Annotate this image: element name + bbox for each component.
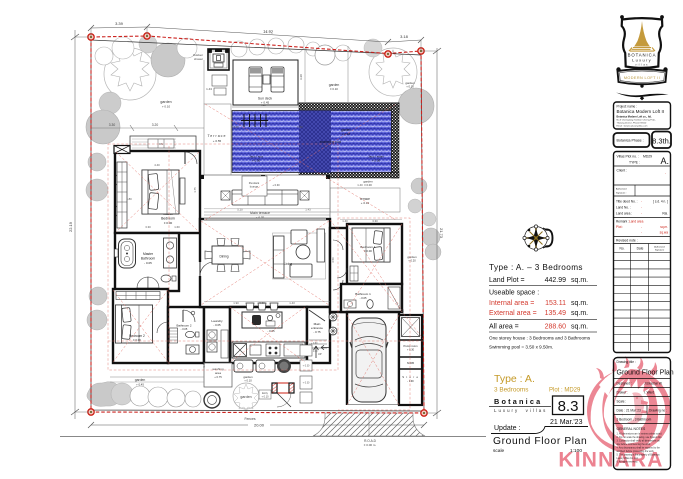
svg-text:3.30: 3.30 — [145, 225, 151, 229]
svg-text:sq.m.: sq.m. — [571, 300, 588, 307]
svg-text:garden: garden — [135, 378, 146, 382]
svg-text:3.20: 3.20 — [299, 74, 303, 80]
svg-text:21.73: 21.73 — [439, 228, 444, 239]
svg-text:Master: Master — [143, 252, 154, 256]
svg-text:sq.wa: sq.wa — [660, 231, 669, 235]
svg-text:Botanica Modern Loft II: Botanica Modern Loft II — [617, 109, 665, 114]
svg-text:Project name :: Project name : — [617, 105, 638, 109]
svg-text:Botanica: Botanica — [494, 397, 542, 406]
svg-text:M.DB: M.DB — [407, 361, 414, 365]
svg-text:4.40: 4.40 — [154, 163, 160, 167]
svg-text:Thalang District, Phuket 83110: Thalang District, Phuket 83110 — [617, 122, 648, 125]
svg-text:villas: villas — [635, 62, 649, 66]
svg-text:Ground Floor Plan: Ground Floor Plan — [493, 436, 587, 447]
svg-text:153.11: 153.11 — [545, 300, 566, 307]
svg-text:garden: garden — [240, 395, 251, 399]
svg-text:5.20: 5.20 — [237, 208, 243, 212]
svg-text:3.39: 3.39 — [115, 21, 124, 26]
svg-text:+ 0.20: + 0.20 — [408, 259, 416, 263]
svg-text:+ 0.00: + 0.00 — [372, 159, 381, 163]
svg-text:UP: UP — [318, 352, 322, 356]
svg-text:-: - — [641, 231, 642, 235]
svg-text:+ 0.10: + 0.10 — [244, 379, 252, 383]
svg-text:Villas Plot no. :: Villas Plot no. : — [617, 155, 639, 159]
svg-text:-: - — [641, 225, 642, 229]
svg-text:135.49: 135.49 — [545, 310, 567, 317]
svg-text:All area =: All area = — [489, 324, 519, 331]
svg-text:Botanica Phase :: Botanica Phase : — [617, 139, 644, 143]
svg-text:MD29: MD29 — [643, 155, 652, 159]
svg-text:442.99: 442.99 — [545, 277, 567, 284]
svg-text:± 0.00: ± 0.00 — [364, 249, 372, 253]
svg-text:Main terrace: Main terrace — [250, 211, 270, 215]
svg-text:Authorized: Authorized — [616, 188, 627, 191]
svg-text:A.: A. — [660, 156, 669, 166]
svg-text:2.30: 2.30 — [297, 125, 303, 129]
svg-text:3.50: 3.50 — [331, 257, 335, 263]
svg-text:KINNARA: KINNARA — [558, 449, 663, 472]
svg-text:- 0.05: - 0.05 — [213, 323, 221, 327]
svg-text:Signature :: Signature : — [616, 192, 627, 195]
svg-text:- 0.75: - 0.75 — [313, 330, 321, 334]
svg-text:3 Bedrooms: 3 Bedrooms — [494, 387, 528, 394]
svg-text:garden: garden — [405, 81, 415, 85]
svg-text:Bathroom 2: Bathroom 2 — [177, 324, 192, 328]
svg-text:- 0.90: - 0.90 — [407, 380, 414, 383]
svg-text:-: - — [641, 206, 642, 210]
svg-text:No.3 Cherngtalay Tambon Cherng: No.3 Cherngtalay Tambon Cherng Prab, — [617, 119, 656, 122]
svg-text:3.20: 3.20 — [233, 125, 239, 129]
svg-text:Luxury villas: Luxury villas — [494, 408, 547, 413]
svg-text:- 0.05: - 0.05 — [181, 327, 188, 331]
svg-text:Swimming pool = 3.50 x 9.50: Swimming pool = 3.50 x 9.50m. — [489, 345, 553, 350]
svg-text:1.43: 1.43 — [206, 87, 212, 91]
svg-text:Terrace: Terrace — [208, 134, 227, 138]
svg-text:garden: garden — [363, 180, 373, 184]
svg-text:Rai.: Rai. — [662, 212, 668, 216]
svg-text:+ 0.45: + 0.45 — [261, 100, 270, 104]
svg-text:Plot : MD29: Plot : MD29 — [549, 388, 581, 394]
svg-text:± 0.00: ± 0.00 — [364, 183, 372, 187]
svg-text:1.40: 1.40 — [357, 183, 363, 187]
svg-text:+ 0.10: + 0.10 — [261, 396, 269, 399]
svg-text:Bathroom: Bathroom — [141, 257, 156, 261]
svg-text:Fences: Fences — [244, 417, 255, 421]
svg-text:sq.m.: sq.m. — [660, 225, 668, 229]
svg-text:+ 0.75: + 0.75 — [214, 375, 222, 379]
svg-text:± 0.00 m.: ± 0.00 m. — [364, 443, 377, 447]
svg-text:Botanica Modern Loft co., ltd.: Botanica Modern Loft co., ltd. — [617, 116, 652, 119]
svg-text:garden: garden — [243, 375, 253, 379]
svg-text:Dining: Dining — [219, 255, 228, 259]
svg-text:Internal area =: Internal area = — [489, 300, 534, 307]
svg-text:External area =: External area = — [489, 310, 537, 317]
svg-text:3.18: 3.18 — [400, 34, 409, 39]
svg-text:+ 0.10: + 0.10 — [162, 105, 171, 109]
svg-text:8.3th.: 8.3th. — [652, 137, 671, 146]
svg-text:shower: shower — [194, 57, 203, 61]
svg-text:Useable space :: Useable space : — [489, 290, 539, 297]
svg-text:sq.m.: sq.m. — [571, 277, 588, 284]
svg-text:No.: No. — [620, 247, 625, 251]
svg-text:20.00: 20.00 — [254, 423, 265, 428]
svg-text:Luxury: Luxury — [632, 58, 652, 63]
svg-text:-: - — [665, 171, 666, 175]
svg-text:1.43: 1.43 — [202, 362, 206, 368]
svg-text:Living: Living — [284, 262, 293, 266]
svg-text:Pump room: Pump room — [404, 344, 419, 348]
svg-text:Land No. :: Land No. : — [616, 206, 631, 210]
svg-text:- 0.05: - 0.05 — [144, 261, 152, 265]
svg-text:Bathroom 1: Bathroom 1 — [355, 292, 371, 296]
svg-text:21 Mar.'23: 21 Mar.'23 — [550, 419, 583, 426]
svg-text:sq.m.: sq.m. — [571, 324, 588, 331]
svg-text:+ 0.30: + 0.30 — [407, 349, 415, 352]
svg-text:....... swimming pool: ....... swimming pool — [313, 140, 341, 144]
svg-text:3.20: 3.20 — [152, 123, 159, 127]
svg-text:± 0.10: ± 0.10 — [330, 87, 338, 91]
svg-text:TYPE :: TYPE : — [629, 161, 640, 165]
svg-text:-: - — [641, 200, 642, 204]
svg-text:Type : A. – 3 Bedrooms: Type : A. – 3 Bedrooms — [489, 263, 583, 272]
svg-text:Type : A.: Type : A. — [494, 373, 535, 385]
svg-text:One storey house : 3 Bedrooms: One storey house : 3 Bedrooms and 3 Bath… — [489, 336, 591, 341]
svg-text:sq.m.: sq.m. — [571, 310, 588, 317]
svg-text:garden: garden — [160, 100, 171, 104]
svg-text:scale: scale — [493, 448, 505, 454]
svg-text:8.3: 8.3 — [558, 398, 579, 415]
svg-text:22.19: 22.19 — [68, 221, 73, 232]
svg-text:+ 0.30: + 0.30 — [303, 365, 310, 368]
svg-text:Revised note :: Revised note : — [616, 239, 638, 243]
svg-text:Title deed No. :: Title deed No. : — [616, 200, 638, 204]
svg-text:+ 0.30: + 0.30 — [272, 183, 280, 187]
svg-text:Client :: Client : — [617, 169, 628, 173]
svg-text:- 0.05: - 0.05 — [360, 296, 367, 300]
svg-text:lounge: lounge — [250, 185, 259, 189]
svg-text:± 0.00: ± 0.00 — [133, 338, 141, 342]
svg-text:+ 0.10: + 0.10 — [406, 85, 414, 89]
svg-text:Remark :: Remark : — [616, 220, 629, 224]
svg-text:-: - — [641, 212, 642, 216]
svg-text:14.92: 14.92 — [263, 29, 274, 35]
svg-text:Authorized: Authorized — [654, 246, 665, 249]
svg-text:1.75: 1.75 — [193, 187, 197, 193]
svg-text:Plot :: Plot : — [616, 225, 623, 229]
svg-text:+ 0.00: + 0.00 — [252, 159, 261, 163]
svg-text:1.60: 1.60 — [174, 225, 180, 229]
svg-text:+ 0.55: + 0.55 — [213, 139, 222, 143]
svg-text:Land area :: Land area : — [616, 212, 632, 216]
svg-text:Bedroom: Bedroom — [161, 217, 175, 221]
svg-text:± 0.00: ± 0.00 — [164, 221, 173, 225]
svg-text:1.43: 1.43 — [305, 208, 311, 212]
svg-text:3.30: 3.30 — [109, 123, 116, 127]
svg-text:area: area — [215, 371, 221, 375]
svg-text:Signature: Signature — [655, 249, 665, 252]
svg-text:Update :: Update : — [494, 425, 521, 432]
svg-text:Email : botanicaluxuryvillas.c: Email : botanicaluxuryvillas.com — [617, 125, 648, 128]
svg-text:Date: Date — [637, 247, 644, 251]
svg-text:288.60: 288.60 — [545, 324, 567, 331]
svg-text:[ s.d. 4 n. ]: [ s.d. 4 n. ] — [653, 200, 668, 204]
svg-text:+ 0.30: + 0.30 — [303, 382, 310, 385]
svg-text:Land Plot =: Land Plot = — [489, 277, 525, 284]
svg-text:MODERN LOFT II: MODERN LOFT II — [624, 76, 660, 80]
svg-text:S t o r e: S t o r e — [402, 375, 419, 379]
svg-text:1.20: 1.20 — [401, 309, 405, 315]
svg-text:garden: garden — [407, 255, 417, 259]
svg-text:Land area: Land area — [629, 220, 644, 224]
svg-text:- 0.05: - 0.05 — [267, 329, 275, 333]
svg-text:+ 0.45: + 0.45 — [136, 383, 144, 387]
